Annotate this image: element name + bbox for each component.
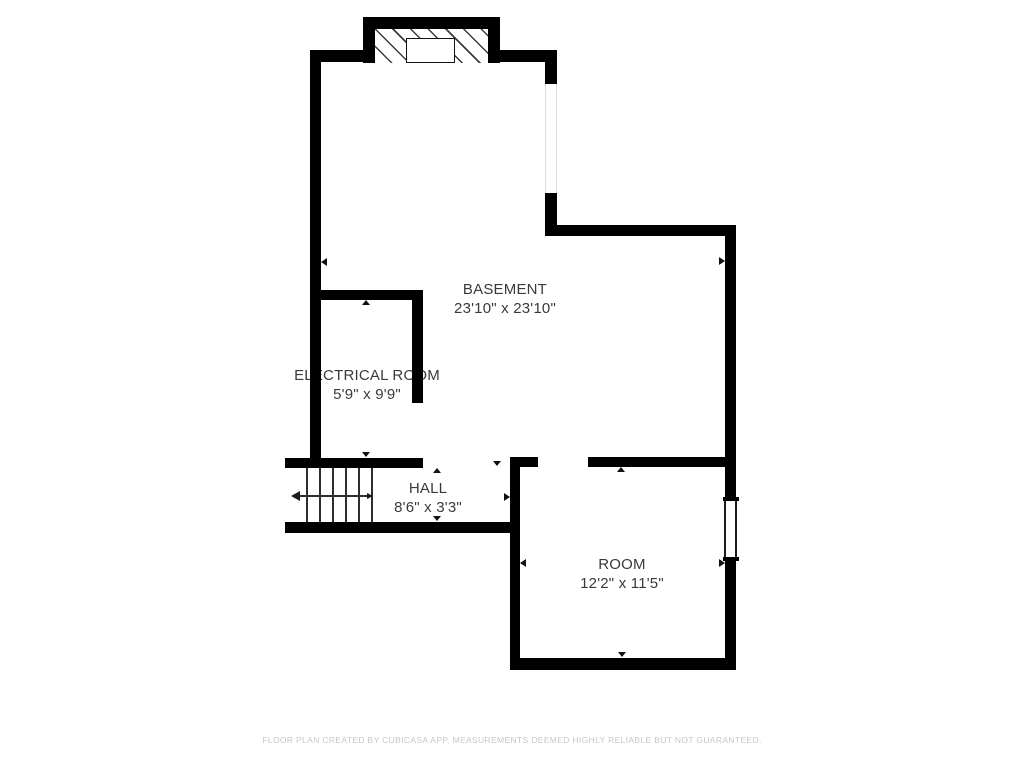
footer-disclaimer: FLOOR PLAN CREATED BY CUBICASA APP. MEAS… bbox=[0, 735, 1024, 745]
room-name: ROOM bbox=[580, 555, 664, 574]
basement-label: BASEMENT 23'10" x 23'10" bbox=[454, 280, 556, 318]
stair-direction-arrow-tail bbox=[367, 493, 373, 499]
basement-name: BASEMENT bbox=[454, 280, 556, 299]
stairwell-wall-top bbox=[363, 17, 500, 29]
measure-marker-down-icon bbox=[433, 516, 441, 521]
room-wall-top-left-segment bbox=[510, 457, 538, 467]
measure-marker-up-icon bbox=[362, 300, 370, 305]
upper-horizontal-wall bbox=[545, 225, 736, 236]
room-dimensions: 12'2" x 11'5" bbox=[580, 574, 664, 593]
window-glass bbox=[724, 501, 737, 557]
measure-marker-up-icon bbox=[617, 467, 625, 472]
window-cap-bottom bbox=[723, 557, 739, 561]
floor-plan-canvas: BASEMENT 23'10" x 23'10" ELECTRICAL ROOM… bbox=[0, 0, 1024, 768]
room-wall-bottom bbox=[510, 658, 736, 670]
upper-right-wall-a bbox=[545, 50, 557, 84]
hall-name: HALL bbox=[394, 479, 462, 498]
measure-marker-left-icon bbox=[321, 258, 327, 266]
right-exterior-wall bbox=[725, 225, 736, 670]
measure-marker-up-icon bbox=[433, 468, 441, 473]
electrical-room-wall-top bbox=[310, 290, 423, 300]
measure-marker-down-icon bbox=[618, 652, 626, 657]
basement-dimensions: 23'10" x 23'10" bbox=[454, 299, 556, 318]
room-label: ROOM 12'2" x 11'5" bbox=[580, 555, 664, 593]
window-icon bbox=[723, 497, 739, 561]
measure-marker-left-icon bbox=[520, 559, 526, 567]
hall-label: HALL 8'6" x 3'3" bbox=[394, 479, 462, 517]
measure-marker-down-icon bbox=[362, 452, 370, 457]
left-exterior-wall bbox=[310, 50, 321, 468]
room-wall-left bbox=[510, 457, 520, 670]
electrical-room-wall-right bbox=[412, 290, 423, 403]
room-wall-top-right-segment bbox=[588, 457, 736, 467]
stairwell-landing-box bbox=[406, 38, 455, 63]
hall-wall-top bbox=[285, 458, 423, 468]
hall-wall-bottom bbox=[285, 522, 520, 533]
stair-direction-arrow-line bbox=[297, 495, 371, 497]
wall-opening-symbol bbox=[545, 84, 557, 193]
stair-direction-arrow-icon bbox=[291, 491, 300, 501]
hall-dimensions: 8'6" x 3'3" bbox=[394, 498, 462, 517]
measure-marker-down-icon bbox=[493, 461, 501, 466]
